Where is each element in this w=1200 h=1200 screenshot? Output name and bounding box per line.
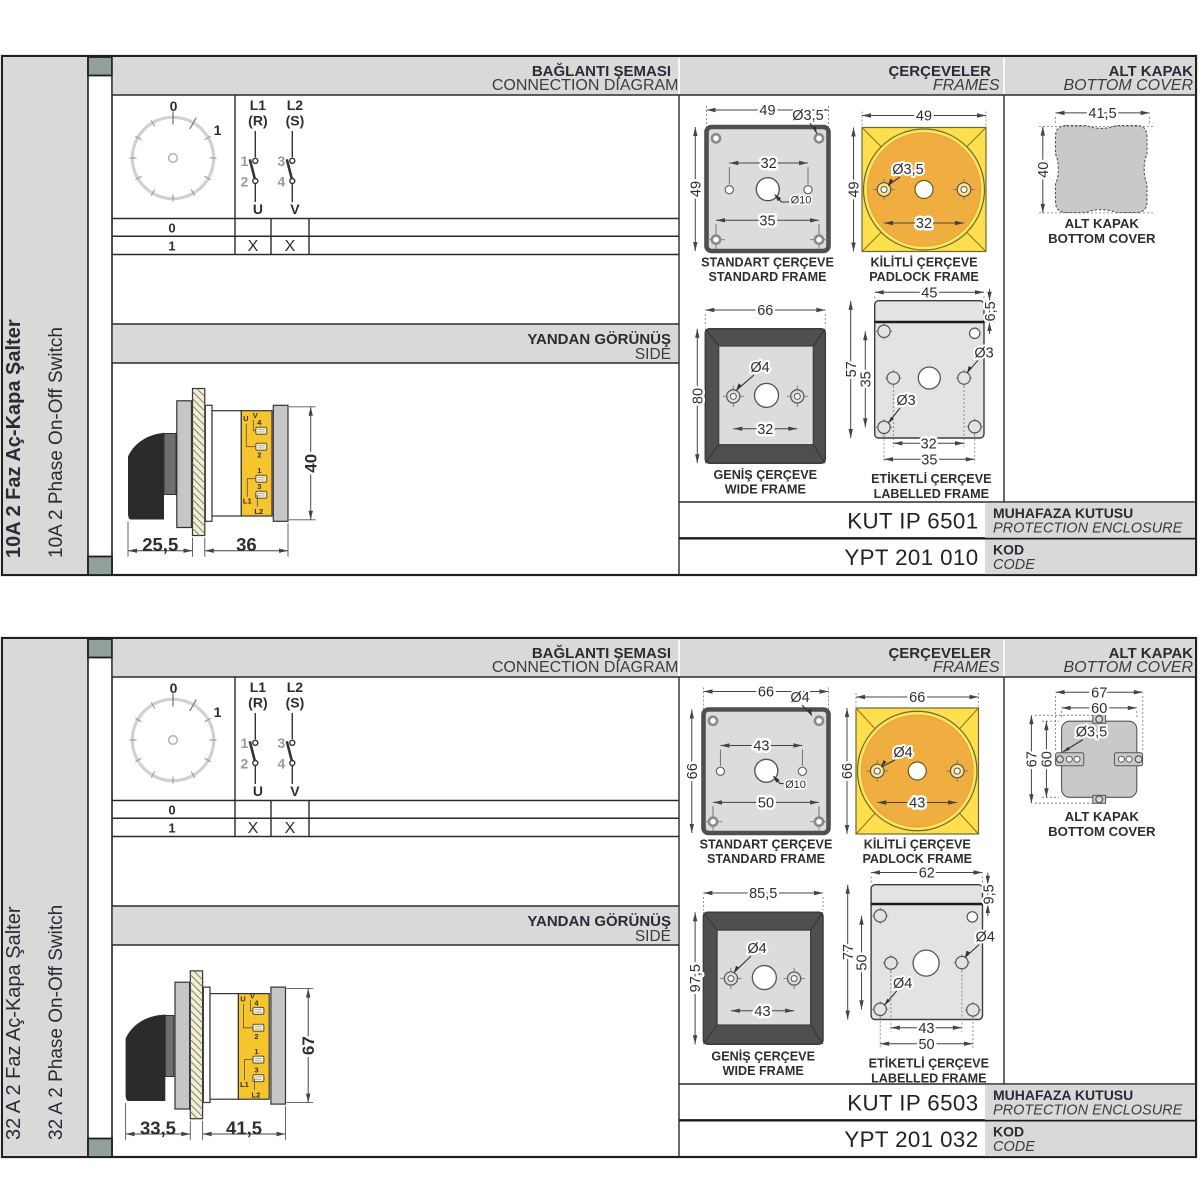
svg-text:40: 40 <box>1036 162 1052 178</box>
svg-text:32: 32 <box>761 156 777 172</box>
svg-text:62: 62 <box>919 866 935 882</box>
svg-text:43: 43 <box>918 1021 934 1037</box>
svg-text:L2: L2 <box>287 679 304 695</box>
svg-text:2: 2 <box>254 1032 258 1041</box>
svg-text:32: 32 <box>916 216 932 232</box>
svg-text:ETİKETLİ ÇERÇEVE: ETİKETLİ ÇERÇEVE <box>871 471 991 486</box>
svg-text:Ø4: Ø4 <box>893 976 912 992</box>
svg-text:66: 66 <box>758 685 774 701</box>
svg-text:X: X <box>285 238 296 255</box>
svg-text:80: 80 <box>690 388 706 404</box>
svg-text:Ø4: Ø4 <box>976 930 995 946</box>
svg-text:0: 0 <box>168 220 175 235</box>
svg-text:(S): (S) <box>286 695 305 711</box>
svg-text:1: 1 <box>168 239 175 254</box>
svg-text:FRAMES: FRAMES <box>933 77 1000 94</box>
svg-text:6,5: 6,5 <box>983 301 999 321</box>
svg-text:60: 60 <box>1039 751 1055 767</box>
svg-text:2: 2 <box>257 451 261 460</box>
svg-text:40: 40 <box>302 454 321 473</box>
svg-text:X: X <box>248 238 259 255</box>
svg-text:ALT KAPAK: ALT KAPAK <box>1065 216 1140 231</box>
svg-text:GENİŞ ÇERÇEVE: GENİŞ ÇERÇEVE <box>714 467 818 482</box>
svg-text:ETİKETLİ ÇERÇEVE: ETİKETLİ ÇERÇEVE <box>869 1056 989 1071</box>
svg-text:45: 45 <box>921 285 937 301</box>
svg-text:32 A 2 Faz Aç-Kapa Şalter: 32 A 2 Faz Aç-Kapa Şalter <box>3 906 25 1140</box>
svg-text:3: 3 <box>254 1066 258 1075</box>
svg-text:BOTTOM COVER: BOTTOM COVER <box>1048 231 1156 246</box>
svg-text:35: 35 <box>858 371 874 387</box>
svg-text:4: 4 <box>278 755 286 771</box>
svg-text:PROTECTION ENCLOSURE: PROTECTION ENCLOSURE <box>993 521 1183 537</box>
svg-text:CONNECTION DIAGRAM: CONNECTION DIAGRAM <box>492 659 679 676</box>
svg-text:GENİŞ ÇERÇEVE: GENİŞ ÇERÇEVE <box>711 1049 815 1064</box>
svg-text:3: 3 <box>278 153 286 169</box>
svg-text:Ø4: Ø4 <box>747 941 766 957</box>
svg-text:CONNECTION DIAGRAM: CONNECTION DIAGRAM <box>492 77 679 94</box>
svg-text:Ø3,5: Ø3,5 <box>792 108 823 124</box>
svg-text:MUHAFAZA KUTUSU: MUHAFAZA KUTUSU <box>993 505 1133 521</box>
svg-text:STANDART ÇERÇEVE: STANDART ÇERÇEVE <box>700 838 833 852</box>
svg-text:ALT KAPAK: ALT KAPAK <box>1065 809 1140 824</box>
svg-text:U: U <box>240 994 245 1003</box>
svg-text:(S): (S) <box>286 113 305 129</box>
svg-text:50: 50 <box>918 1037 934 1053</box>
svg-text:WIDE FRAME: WIDE FRAME <box>723 1064 804 1078</box>
svg-text:49: 49 <box>759 103 775 119</box>
svg-text:67: 67 <box>1091 685 1107 701</box>
svg-text:YPT 201 032: YPT 201 032 <box>844 1127 978 1152</box>
svg-text:MUHAFAZA KUTUSU: MUHAFAZA KUTUSU <box>993 1087 1133 1103</box>
svg-text:L1: L1 <box>250 97 267 113</box>
svg-text:CODE: CODE <box>993 1139 1035 1155</box>
svg-text:LABELLED FRAME: LABELLED FRAME <box>871 1071 986 1085</box>
svg-text:49: 49 <box>916 109 932 125</box>
svg-text:U: U <box>243 414 248 423</box>
svg-text:4: 4 <box>278 173 286 189</box>
svg-text:Ø10: Ø10 <box>791 195 812 207</box>
svg-text:Ø3: Ø3 <box>896 393 915 409</box>
svg-text:10A 2 Phase On-Off Switch: 10A 2 Phase On-Off Switch <box>46 327 67 558</box>
svg-text:V: V <box>290 201 300 217</box>
svg-text:PADLOCK FRAME: PADLOCK FRAME <box>869 270 979 284</box>
svg-text:67: 67 <box>299 1036 318 1055</box>
svg-text:97,5: 97,5 <box>688 964 704 992</box>
svg-text:(R): (R) <box>248 695 267 711</box>
svg-text:STANDART ÇERÇEVE: STANDART ÇERÇEVE <box>701 256 834 270</box>
svg-text:32 A 2 Phase On-Off Switch: 32 A 2 Phase On-Off Switch <box>46 905 67 1140</box>
svg-text:33,5: 33,5 <box>140 1117 176 1138</box>
svg-text:FRAMES: FRAMES <box>933 659 1000 676</box>
svg-text:25,5: 25,5 <box>142 534 178 555</box>
svg-text:SIDE: SIDE <box>635 346 671 363</box>
svg-text:49: 49 <box>847 181 863 197</box>
svg-text:V: V <box>290 783 300 799</box>
svg-text:YPT 201 010: YPT 201 010 <box>844 545 978 570</box>
svg-text:0: 0 <box>170 680 178 696</box>
svg-text:Ø4: Ø4 <box>790 690 809 706</box>
svg-text:67: 67 <box>1024 751 1040 767</box>
svg-text:49: 49 <box>688 181 704 197</box>
svg-text:0: 0 <box>170 98 178 114</box>
svg-text:CODE: CODE <box>993 557 1035 573</box>
svg-text:(R): (R) <box>248 113 267 129</box>
svg-text:PROTECTION ENCLOSURE: PROTECTION ENCLOSURE <box>993 1103 1183 1119</box>
svg-text:Ø4: Ø4 <box>893 745 912 761</box>
svg-text:BOTTOM COVER: BOTTOM COVER <box>1048 824 1156 839</box>
svg-text:KUT IP 6501: KUT IP 6501 <box>847 509 978 534</box>
svg-text:43: 43 <box>753 739 769 755</box>
svg-text:L1: L1 <box>243 497 252 506</box>
svg-text:57: 57 <box>844 361 860 377</box>
svg-text:PADLOCK FRAME: PADLOCK FRAME <box>862 852 972 866</box>
svg-text:41,5: 41,5 <box>226 1117 262 1138</box>
svg-text:1: 1 <box>214 122 222 138</box>
svg-text:43: 43 <box>909 796 925 812</box>
svg-text:STANDARD FRAME: STANDARD FRAME <box>709 270 827 284</box>
svg-text:50: 50 <box>855 954 871 970</box>
svg-text:35: 35 <box>921 452 937 468</box>
svg-text:66: 66 <box>757 303 773 319</box>
svg-text:9,5: 9,5 <box>981 884 997 904</box>
svg-text:1: 1 <box>168 821 175 836</box>
svg-text:Ø3,5: Ø3,5 <box>892 162 923 178</box>
svg-text:Ø3: Ø3 <box>974 345 993 361</box>
svg-text:L1: L1 <box>240 1080 249 1089</box>
svg-text:35: 35 <box>759 213 775 229</box>
svg-text:U: U <box>253 201 263 217</box>
svg-text:Ø10: Ø10 <box>785 779 806 791</box>
svg-text:50: 50 <box>758 795 774 811</box>
svg-text:BOTTOM COVER: BOTTOM COVER <box>1064 659 1194 676</box>
svg-text:2: 2 <box>241 173 249 189</box>
svg-text:2: 2 <box>241 755 249 771</box>
svg-text:KOD: KOD <box>993 1124 1024 1140</box>
svg-text:43: 43 <box>754 1004 770 1020</box>
svg-text:BOTTOM COVER: BOTTOM COVER <box>1064 77 1194 94</box>
svg-text:L2: L2 <box>252 1091 261 1100</box>
svg-text:60: 60 <box>1091 701 1107 717</box>
svg-text:KUT IP 6503: KUT IP 6503 <box>847 1091 978 1116</box>
svg-text:Ø4: Ø4 <box>750 360 769 376</box>
svg-text:1: 1 <box>214 704 222 720</box>
svg-text:66: 66 <box>840 763 856 779</box>
svg-text:1: 1 <box>254 1047 258 1056</box>
svg-text:LABELLED FRAME: LABELLED FRAME <box>874 487 989 501</box>
svg-text:L2: L2 <box>254 507 263 516</box>
svg-text:32: 32 <box>921 436 937 452</box>
svg-text:SIDE: SIDE <box>635 928 671 945</box>
svg-text:3: 3 <box>257 482 261 491</box>
svg-text:1: 1 <box>241 153 249 169</box>
svg-text:0: 0 <box>168 802 175 817</box>
svg-text:10A 2 Faz Aç-Kapa Şalter: 10A 2 Faz Aç-Kapa Şalter <box>3 319 25 558</box>
svg-text:STANDARD FRAME: STANDARD FRAME <box>707 852 825 866</box>
svg-text:L1: L1 <box>250 679 267 695</box>
svg-text:41,5: 41,5 <box>1088 106 1116 122</box>
svg-text:KİLİTLİ ÇERÇEVE: KİLİTLİ ÇERÇEVE <box>870 255 977 270</box>
svg-text:X: X <box>248 820 259 837</box>
svg-text:U: U <box>253 783 263 799</box>
svg-text:WIDE FRAME: WIDE FRAME <box>725 482 806 496</box>
svg-text:66: 66 <box>909 690 925 706</box>
svg-text:1: 1 <box>257 466 261 475</box>
svg-text:85,5: 85,5 <box>749 886 777 902</box>
svg-text:3: 3 <box>278 735 286 751</box>
svg-text:KOD: KOD <box>993 542 1024 558</box>
svg-text:X: X <box>285 820 296 837</box>
svg-text:L2: L2 <box>287 97 304 113</box>
svg-text:1: 1 <box>241 735 249 751</box>
svg-text:KİLİTLİ ÇERÇEVE: KİLİTLİ ÇERÇEVE <box>864 837 971 852</box>
svg-text:36: 36 <box>236 534 257 555</box>
svg-text:Ø3,5: Ø3,5 <box>1076 725 1107 741</box>
svg-text:66: 66 <box>685 763 701 779</box>
svg-text:32: 32 <box>757 422 773 438</box>
